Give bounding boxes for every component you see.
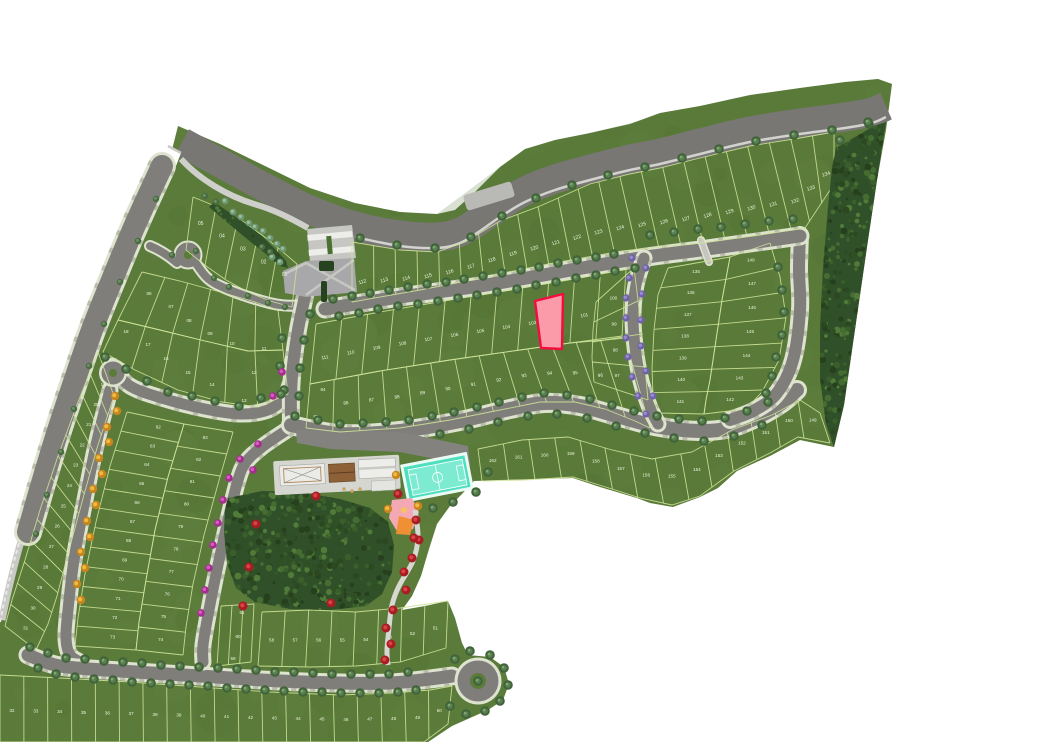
svg-text:07: 07 bbox=[168, 304, 174, 309]
svg-text:15: 15 bbox=[185, 370, 191, 375]
svg-text:69: 69 bbox=[122, 557, 128, 562]
svg-text:84: 84 bbox=[320, 387, 326, 392]
svg-text:25: 25 bbox=[61, 503, 67, 508]
svg-text:57: 57 bbox=[293, 637, 299, 642]
svg-text:42: 42 bbox=[248, 715, 254, 720]
svg-text:03: 03 bbox=[240, 246, 246, 252]
svg-text:147: 147 bbox=[748, 281, 756, 286]
svg-text:02: 02 bbox=[261, 259, 267, 265]
svg-text:46: 46 bbox=[343, 717, 349, 722]
svg-text:159: 159 bbox=[567, 451, 575, 456]
svg-text:01: 01 bbox=[282, 272, 288, 278]
svg-text:79: 79 bbox=[178, 524, 184, 529]
svg-text:65: 65 bbox=[139, 481, 145, 486]
svg-text:52: 52 bbox=[410, 631, 416, 636]
svg-text:67: 67 bbox=[130, 519, 136, 524]
svg-text:145: 145 bbox=[746, 329, 754, 334]
svg-text:82: 82 bbox=[196, 457, 202, 462]
svg-text:50: 50 bbox=[437, 708, 443, 713]
svg-text:37: 37 bbox=[129, 711, 135, 716]
svg-text:13: 13 bbox=[241, 398, 247, 403]
svg-text:06: 06 bbox=[146, 291, 152, 296]
svg-text:60: 60 bbox=[235, 634, 241, 639]
svg-text:68: 68 bbox=[126, 538, 132, 543]
svg-text:31: 31 bbox=[23, 625, 29, 630]
svg-text:61: 61 bbox=[239, 610, 245, 615]
svg-text:135: 135 bbox=[692, 269, 700, 274]
svg-text:35: 35 bbox=[81, 710, 87, 715]
svg-text:158: 158 bbox=[592, 459, 600, 464]
svg-text:142: 142 bbox=[726, 397, 734, 402]
svg-text:39: 39 bbox=[176, 713, 182, 718]
svg-text:29: 29 bbox=[37, 585, 43, 590]
svg-text:74: 74 bbox=[158, 637, 164, 642]
svg-text:70: 70 bbox=[119, 577, 125, 582]
svg-text:77: 77 bbox=[169, 569, 175, 574]
svg-text:155: 155 bbox=[668, 474, 676, 479]
svg-text:136: 136 bbox=[687, 290, 695, 295]
svg-text:30: 30 bbox=[30, 605, 36, 610]
svg-text:27: 27 bbox=[49, 544, 55, 549]
svg-text:156: 156 bbox=[642, 472, 650, 477]
svg-text:17: 17 bbox=[145, 342, 151, 347]
svg-text:09: 09 bbox=[207, 331, 213, 336]
svg-text:64: 64 bbox=[144, 462, 150, 467]
svg-text:33: 33 bbox=[33, 709, 39, 714]
svg-text:144: 144 bbox=[743, 353, 751, 358]
svg-text:154: 154 bbox=[693, 467, 701, 472]
svg-text:75: 75 bbox=[161, 614, 167, 619]
svg-text:146: 146 bbox=[748, 305, 756, 310]
svg-text:14: 14 bbox=[209, 382, 215, 387]
svg-text:140: 140 bbox=[677, 377, 685, 382]
svg-text:71: 71 bbox=[115, 596, 121, 601]
svg-text:49: 49 bbox=[415, 715, 421, 720]
svg-text:157: 157 bbox=[617, 466, 625, 471]
svg-text:63: 63 bbox=[150, 443, 156, 448]
svg-text:150: 150 bbox=[785, 418, 793, 423]
svg-text:81: 81 bbox=[190, 479, 196, 484]
svg-text:66: 66 bbox=[135, 500, 141, 505]
svg-text:11: 11 bbox=[262, 346, 267, 351]
svg-text:12: 12 bbox=[251, 370, 257, 375]
svg-text:99: 99 bbox=[612, 321, 618, 326]
svg-text:38: 38 bbox=[153, 712, 159, 717]
svg-text:161: 161 bbox=[515, 455, 523, 460]
svg-text:45: 45 bbox=[319, 717, 325, 722]
svg-text:36: 36 bbox=[105, 710, 111, 715]
svg-text:149: 149 bbox=[809, 418, 817, 423]
svg-text:58: 58 bbox=[269, 638, 275, 643]
svg-text:83: 83 bbox=[203, 435, 209, 440]
svg-text:76: 76 bbox=[165, 592, 171, 597]
svg-text:08: 08 bbox=[186, 318, 192, 323]
svg-text:05: 05 bbox=[198, 221, 204, 227]
svg-text:48: 48 bbox=[391, 716, 397, 721]
svg-text:148: 148 bbox=[747, 258, 755, 263]
svg-text:78: 78 bbox=[173, 546, 179, 551]
svg-text:22: 22 bbox=[80, 442, 86, 447]
svg-text:24: 24 bbox=[67, 483, 73, 488]
svg-text:80: 80 bbox=[184, 502, 190, 507]
svg-text:72: 72 bbox=[112, 615, 118, 620]
svg-text:20: 20 bbox=[93, 402, 99, 407]
svg-text:97: 97 bbox=[615, 373, 621, 378]
svg-text:19: 19 bbox=[101, 382, 107, 387]
svg-text:23: 23 bbox=[73, 463, 79, 468]
svg-text:98: 98 bbox=[613, 347, 619, 352]
svg-text:59: 59 bbox=[230, 656, 236, 661]
svg-text:152: 152 bbox=[738, 441, 746, 446]
svg-text:34: 34 bbox=[57, 709, 63, 714]
svg-text:73: 73 bbox=[110, 635, 116, 640]
svg-text:04: 04 bbox=[219, 233, 225, 239]
svg-text:10: 10 bbox=[229, 341, 235, 346]
svg-text:139: 139 bbox=[679, 355, 687, 360]
svg-text:162: 162 bbox=[489, 458, 497, 463]
svg-text:56: 56 bbox=[316, 638, 322, 643]
svg-text:32: 32 bbox=[9, 708, 15, 713]
svg-text:21: 21 bbox=[86, 422, 92, 427]
svg-text:160: 160 bbox=[541, 453, 549, 458]
svg-text:47: 47 bbox=[367, 716, 373, 721]
svg-text:51: 51 bbox=[433, 626, 439, 631]
svg-text:143: 143 bbox=[736, 376, 744, 381]
svg-text:40: 40 bbox=[200, 713, 206, 718]
svg-text:153: 153 bbox=[715, 453, 723, 458]
svg-text:55: 55 bbox=[340, 638, 346, 643]
svg-text:41: 41 bbox=[224, 714, 230, 719]
svg-text:138: 138 bbox=[681, 334, 689, 339]
svg-text:43: 43 bbox=[272, 716, 278, 721]
svg-text:28: 28 bbox=[43, 565, 49, 570]
svg-text:44: 44 bbox=[296, 716, 302, 721]
svg-text:62: 62 bbox=[156, 425, 162, 430]
svg-text:26: 26 bbox=[55, 524, 61, 529]
svg-text:137: 137 bbox=[684, 312, 692, 317]
svg-text:18: 18 bbox=[123, 329, 129, 334]
svg-text:141: 141 bbox=[677, 399, 685, 404]
svg-text:16: 16 bbox=[163, 356, 169, 361]
svg-text:151: 151 bbox=[762, 430, 770, 435]
svg-text:100: 100 bbox=[610, 296, 618, 301]
svg-text:54: 54 bbox=[363, 637, 369, 642]
